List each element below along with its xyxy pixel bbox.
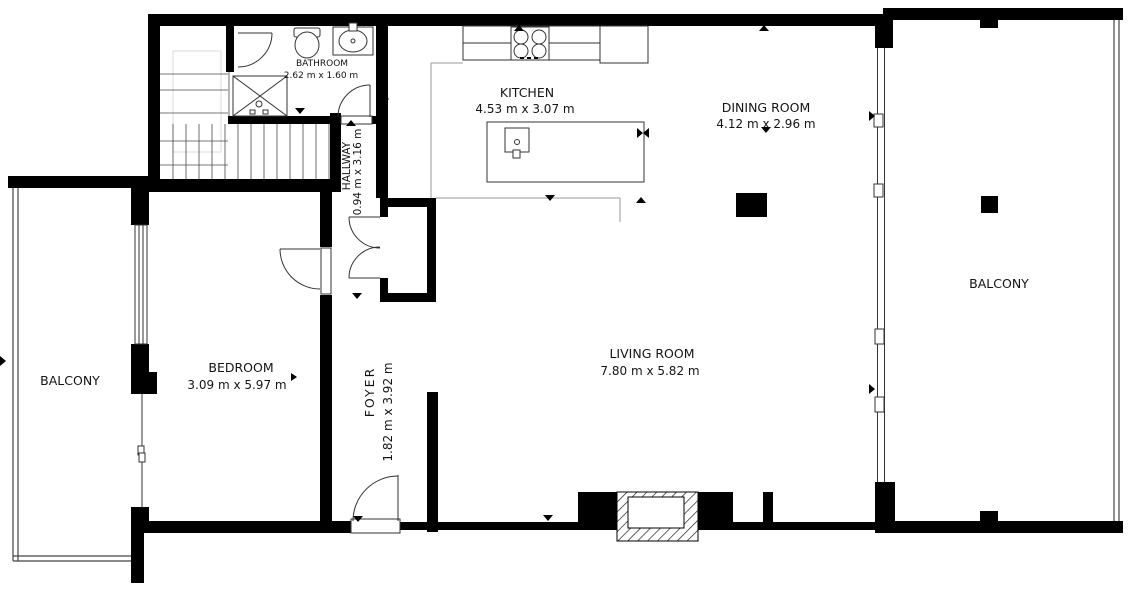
bedroom-window — [135, 225, 147, 344]
shower-icon — [233, 76, 287, 116]
walls — [8, 8, 1123, 583]
foyer-label: FOYER — [362, 367, 377, 418]
wall-bedroom-bottom — [140, 521, 351, 533]
wall-bath-left-upper — [226, 24, 234, 72]
bathroom-label: BATHROOM — [296, 59, 348, 69]
living-room-dims: 7.80 m x 5.82 m — [600, 364, 699, 378]
wall-bottom-2 — [733, 522, 877, 530]
wall-bedroom-west-1 — [131, 187, 149, 225]
wall-bath-bottom-left — [228, 116, 341, 124]
wall-bath-bottom-right — [372, 116, 388, 124]
wall-balcony-right-tab-top — [980, 18, 998, 28]
balcony-right-railing — [1114, 20, 1119, 521]
bathroom-fixtures — [233, 23, 373, 116]
stair-guide-line — [173, 51, 221, 152]
bathroom-dims: 2.62 m x 1.60 m — [284, 71, 358, 81]
wall-balcony-left-top — [8, 176, 150, 188]
toilet-icon — [294, 28, 320, 58]
wall-bedroom-west-3 — [131, 372, 157, 394]
bedroom-dims: 3.09 m x 5.97 m — [187, 378, 286, 392]
kitchen-fixtures — [431, 26, 649, 222]
floor-plan: BATHROOM 2.62 m x 1.60 m KITCHEN 4.53 m … — [0, 0, 1128, 590]
wall-bedroom-top — [148, 179, 341, 192]
closet-double-doors — [349, 217, 380, 278]
balcony-left-label: BALCONY — [40, 373, 100, 388]
wall-balcony-right-tab-bottom — [980, 511, 998, 521]
wall-balcony-right-bottom — [887, 521, 1123, 533]
bedroom-door — [280, 248, 331, 294]
kitchen-dims: 4.53 m x 3.07 m — [475, 102, 574, 116]
foyer-dims: 1.82 m x 3.92 m — [381, 362, 395, 461]
kitchen-counter-right — [600, 26, 648, 63]
wall-closet-left-a — [380, 198, 388, 217]
hallway-dims: 0.94 m x 3.16 m — [352, 129, 364, 216]
sink-icon — [333, 23, 373, 55]
wall-bedroom-west-stub — [131, 533, 144, 583]
bathroom-hall-door — [338, 85, 372, 124]
balcony-right-label: BALCONY — [969, 276, 1029, 291]
column-balcony-right — [981, 196, 998, 213]
kitchen-label: KITCHEN — [500, 85, 554, 100]
dining-room-label: DINING ROOM — [722, 100, 811, 115]
kitchen-island — [487, 122, 649, 182]
entry-door — [351, 475, 400, 533]
living-room-label: LIVING ROOM — [609, 346, 694, 361]
floor-plan-drawing: BATHROOM 2.62 m x 1.60 m KITCHEN 4.53 m … — [0, 0, 1128, 590]
fireplace — [617, 492, 698, 541]
wall-hall-left — [330, 113, 341, 187]
wall-foyer-partition — [427, 392, 438, 532]
wall-balcony-right-top — [883, 8, 1123, 20]
wall-bedroom-west-2 — [131, 344, 149, 374]
stove-icon — [511, 27, 549, 60]
wall-bottom-stub — [763, 492, 773, 522]
wall-bath-hall-right — [376, 24, 388, 198]
wall-closet-left-b — [380, 278, 388, 302]
bathroom-entry-door — [238, 33, 272, 67]
wall-bedroom-east-1 — [320, 187, 332, 247]
dining-room-dims: 4.12 m x 2.96 m — [716, 117, 815, 131]
wall-top-main — [148, 14, 886, 26]
column-dining — [736, 193, 767, 217]
bedroom-label: BEDROOM — [208, 360, 273, 375]
wall-left-main — [148, 14, 160, 187]
wall-closet-right — [427, 198, 436, 302]
